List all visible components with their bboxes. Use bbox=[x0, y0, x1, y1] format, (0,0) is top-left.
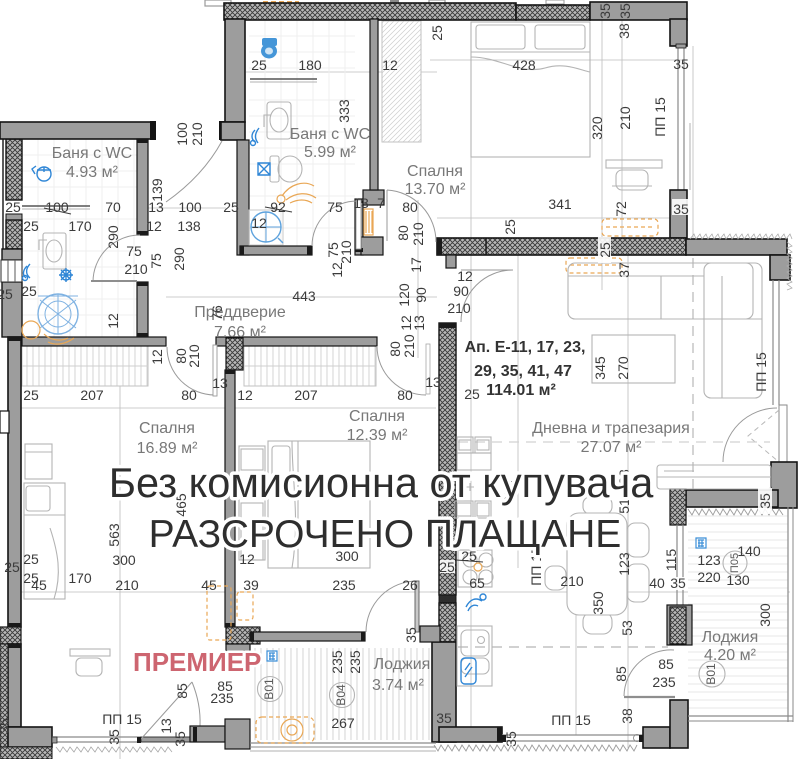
svg-text:210: 210 bbox=[617, 106, 633, 130]
svg-text:ПРЕМИЕР: ПРЕМИЕР bbox=[133, 647, 261, 677]
svg-text:Спалня: Спалня bbox=[349, 408, 405, 425]
svg-text:80: 80 bbox=[397, 387, 413, 403]
svg-text:39: 39 bbox=[243, 577, 259, 593]
svg-text:114.01 м²: 114.01 м² bbox=[486, 382, 556, 399]
svg-text:563: 563 bbox=[106, 523, 122, 547]
svg-text:341: 341 bbox=[548, 196, 572, 212]
svg-text:85: 85 bbox=[658, 656, 674, 672]
svg-text:290: 290 bbox=[105, 225, 121, 249]
svg-text:4.20 м²: 4.20 м² bbox=[704, 647, 757, 664]
svg-text:25: 25 bbox=[4, 559, 20, 575]
svg-text:100: 100 bbox=[174, 122, 190, 146]
svg-text:29, 35, 41, 47: 29, 35, 41, 47 bbox=[474, 363, 572, 380]
svg-text:40: 40 bbox=[649, 575, 665, 591]
svg-text:76: 76 bbox=[209, 305, 225, 321]
svg-text:35: 35 bbox=[172, 731, 188, 747]
svg-text:170: 170 bbox=[68, 218, 92, 234]
svg-text:Преддверие: Преддверие bbox=[194, 304, 286, 321]
svg-text:12: 12 bbox=[329, 262, 345, 278]
svg-text:ПП 15: ПП 15 bbox=[753, 352, 769, 392]
svg-text:37: 37 bbox=[616, 262, 632, 278]
svg-text:38: 38 bbox=[616, 23, 632, 39]
svg-text:17: 17 bbox=[408, 257, 424, 273]
svg-text:80: 80 bbox=[181, 387, 197, 403]
svg-text:70: 70 bbox=[105, 199, 121, 215]
svg-text:13: 13 bbox=[212, 375, 228, 391]
svg-text:210: 210 bbox=[338, 240, 354, 264]
svg-text:300: 300 bbox=[757, 603, 773, 627]
svg-text:210: 210 bbox=[447, 300, 471, 316]
svg-text:140: 140 bbox=[737, 543, 761, 559]
svg-text:53: 53 bbox=[619, 620, 635, 636]
svg-text:45: 45 bbox=[201, 577, 217, 593]
svg-text:235: 235 bbox=[652, 674, 676, 690]
svg-text:320: 320 bbox=[589, 116, 605, 140]
svg-text:75: 75 bbox=[327, 199, 343, 215]
svg-text:270: 270 bbox=[615, 356, 631, 380]
svg-text:428: 428 bbox=[512, 57, 536, 73]
svg-text:207: 207 bbox=[294, 387, 318, 403]
svg-text:25: 25 bbox=[439, 559, 455, 575]
svg-text:Спалня: Спалня bbox=[407, 163, 463, 180]
svg-text:13: 13 bbox=[353, 195, 369, 211]
svg-text:120: 120 bbox=[396, 283, 412, 307]
svg-text:92: 92 bbox=[270, 199, 286, 215]
svg-text:290: 290 bbox=[171, 247, 187, 271]
svg-text:35: 35 bbox=[597, 3, 613, 19]
svg-text:65: 65 bbox=[469, 575, 485, 591]
svg-text:123: 123 bbox=[697, 552, 721, 568]
svg-text:45: 45 bbox=[31, 577, 47, 593]
svg-text:210: 210 bbox=[560, 573, 584, 589]
svg-text:ПП 15: ПП 15 bbox=[551, 712, 591, 728]
svg-text:235: 235 bbox=[347, 650, 363, 674]
svg-text:ПП 15: ПП 15 bbox=[102, 711, 142, 727]
svg-text:85: 85 bbox=[174, 683, 190, 699]
svg-text:72: 72 bbox=[613, 201, 629, 217]
svg-text:35: 35 bbox=[436, 710, 452, 726]
svg-text:138: 138 bbox=[177, 218, 201, 234]
svg-text:3.74 м²: 3.74 м² bbox=[372, 677, 425, 694]
svg-text:26: 26 bbox=[402, 577, 418, 593]
svg-text:В01: В01 bbox=[704, 663, 718, 685]
svg-text:170: 170 bbox=[68, 570, 92, 586]
svg-text:443: 443 bbox=[292, 288, 316, 304]
svg-text:130: 130 bbox=[726, 572, 750, 588]
svg-text:35: 35 bbox=[106, 729, 122, 745]
svg-text:25: 25 bbox=[23, 218, 39, 234]
svg-text:25: 25 bbox=[502, 219, 518, 235]
svg-text:75: 75 bbox=[126, 243, 142, 259]
svg-text:35: 35 bbox=[503, 731, 519, 747]
svg-text:80: 80 bbox=[402, 199, 418, 215]
svg-text:12: 12 bbox=[105, 313, 121, 329]
svg-text:13: 13 bbox=[425, 374, 441, 390]
svg-text:210: 210 bbox=[410, 222, 426, 246]
svg-text:100: 100 bbox=[178, 199, 202, 215]
svg-text:333: 333 bbox=[336, 99, 352, 123]
svg-text:25: 25 bbox=[5, 199, 21, 215]
svg-text:90: 90 bbox=[453, 283, 469, 299]
svg-text:25: 25 bbox=[251, 57, 267, 73]
svg-text:12: 12 bbox=[149, 349, 165, 365]
svg-text:220: 220 bbox=[697, 569, 721, 585]
svg-text:Спалня: Спалня bbox=[139, 420, 195, 437]
svg-text:35: 35 bbox=[617, 3, 633, 19]
svg-text:13.70 м²: 13.70 м² bbox=[405, 181, 466, 198]
svg-text:75: 75 bbox=[148, 253, 164, 269]
svg-text:210: 210 bbox=[186, 344, 202, 368]
svg-text:180: 180 bbox=[298, 57, 322, 73]
svg-text:РАЗСРОЧЕНО ПЛАЩАНЕ: РАЗСРОЧЕНО ПЛАЩАНЕ bbox=[149, 513, 622, 556]
svg-text:35: 35 bbox=[0, 718, 12, 734]
svg-text:35: 35 bbox=[757, 493, 773, 509]
svg-text:235: 235 bbox=[332, 577, 356, 593]
svg-text:25: 25 bbox=[23, 551, 39, 567]
svg-text:267: 267 bbox=[331, 715, 355, 731]
svg-text:25: 25 bbox=[464, 386, 480, 402]
svg-text:12.39 м²: 12.39 м² bbox=[347, 427, 408, 444]
svg-text:35: 35 bbox=[673, 56, 689, 72]
svg-text:235: 235 bbox=[329, 650, 345, 674]
svg-text:139: 139 bbox=[149, 178, 165, 202]
svg-text:345: 345 bbox=[592, 356, 608, 380]
svg-text:13: 13 bbox=[411, 315, 427, 331]
svg-text:35: 35 bbox=[670, 575, 686, 591]
svg-text:35: 35 bbox=[403, 627, 419, 643]
svg-text:115: 115 bbox=[663, 549, 679, 572]
svg-text:12: 12 bbox=[146, 218, 162, 234]
svg-text:80: 80 bbox=[395, 225, 411, 241]
svg-text:90: 90 bbox=[413, 287, 429, 303]
svg-text:Лоджия: Лоджия bbox=[374, 656, 431, 673]
svg-text:12: 12 bbox=[382, 57, 398, 73]
svg-text:207: 207 bbox=[80, 387, 104, 403]
svg-text:ПП 15: ПП 15 bbox=[652, 97, 668, 137]
svg-text:Баня с WC: Баня с WC bbox=[52, 145, 132, 162]
svg-text:5.99 м²: 5.99 м² bbox=[304, 144, 357, 161]
svg-text:Без комисионна от купувача: Без комисионна от купувача bbox=[109, 459, 655, 506]
svg-text:25: 25 bbox=[21, 283, 37, 299]
svg-text:25: 25 bbox=[597, 242, 613, 258]
svg-text:12: 12 bbox=[457, 268, 473, 284]
svg-text:210: 210 bbox=[115, 577, 139, 593]
svg-text:7: 7 bbox=[377, 195, 385, 211]
svg-text:25: 25 bbox=[23, 387, 39, 403]
svg-text:210: 210 bbox=[401, 334, 417, 358]
svg-text:25: 25 bbox=[0, 286, 13, 302]
svg-text:Баня с WC: Баня с WC bbox=[290, 126, 370, 143]
svg-text:300: 300 bbox=[112, 552, 136, 568]
svg-text:38: 38 bbox=[619, 708, 635, 724]
svg-text:27.07 м²: 27.07 м² bbox=[581, 439, 642, 456]
svg-text:12: 12 bbox=[237, 387, 253, 403]
svg-text:25: 25 bbox=[429, 25, 445, 41]
svg-text:Дневна и трапезария: Дневна и трапезария bbox=[532, 420, 690, 437]
svg-text:Лоджия: Лоджия bbox=[702, 629, 759, 646]
svg-text:В01: В01 bbox=[262, 678, 276, 700]
svg-text:В04: В04 bbox=[334, 684, 348, 706]
svg-text:Ап. Е-11, 17, 23,: Ап. Е-11, 17, 23, bbox=[465, 339, 586, 356]
svg-text:12: 12 bbox=[251, 215, 267, 231]
svg-text:25: 25 bbox=[223, 199, 239, 215]
svg-text:4.93 м²: 4.93 м² bbox=[66, 164, 119, 181]
svg-text:350: 350 bbox=[590, 591, 606, 615]
svg-text:235: 235 bbox=[210, 690, 234, 706]
svg-text:80: 80 bbox=[387, 341, 403, 357]
svg-text:210: 210 bbox=[124, 261, 148, 277]
svg-text:210: 210 bbox=[189, 122, 205, 146]
svg-text:16.89 м²: 16.89 м² bbox=[137, 440, 198, 457]
svg-text:7.66 м²: 7.66 м² bbox=[214, 324, 267, 341]
svg-text:35: 35 bbox=[673, 201, 689, 217]
svg-text:85: 85 bbox=[613, 666, 629, 682]
